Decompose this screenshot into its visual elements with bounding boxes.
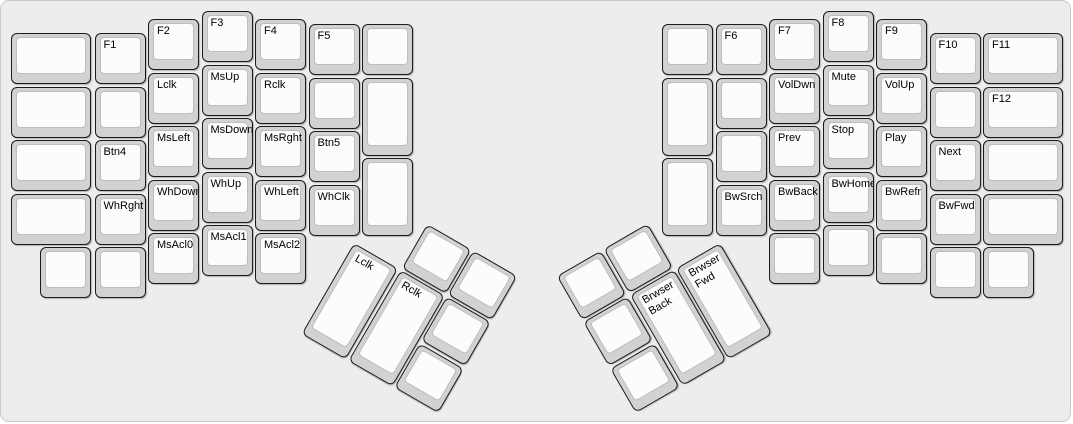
keycap-face: [881, 237, 922, 274]
keycap-face: [774, 237, 815, 274]
keycap-face: Next: [935, 144, 976, 181]
key-label: MsUp: [211, 71, 240, 84]
keycap-face: [367, 162, 408, 226]
key-label: F9: [885, 25, 898, 38]
key-msdown[interactable]: MsDown: [202, 118, 253, 169]
keycap-face: VolUp: [881, 77, 922, 114]
keyboard-canvas: F1Btn4WhRghtF2LclkMsLeftWhDownMsAcl0F3Ms…: [0, 0, 1071, 422]
keycap-face: [988, 144, 1058, 181]
keycap-face: WhUp: [207, 176, 248, 213]
keycap-face: Play: [881, 130, 922, 167]
key-blank[interactable]: [823, 225, 874, 276]
keycap-face: [411, 229, 465, 282]
key-label: F10: [939, 39, 958, 52]
key-blank[interactable]: [716, 131, 767, 182]
key-f2[interactable]: F2: [148, 19, 199, 70]
key-blank[interactable]: [11, 33, 91, 84]
keycap-face: F11: [988, 37, 1058, 74]
key-label: Btn5: [318, 137, 341, 150]
keycap-face: [367, 28, 408, 65]
key-blank[interactable]: [930, 87, 981, 138]
keycap-face: Rclk: [260, 77, 301, 114]
keycap-face: [721, 135, 762, 172]
key-label: MsLeft: [157, 132, 190, 145]
keycap-face: F4: [260, 23, 301, 60]
key-label: Brwser Back: [640, 279, 683, 319]
key-blank[interactable]: [983, 140, 1063, 191]
key-volup[interactable]: VolUp: [876, 73, 927, 124]
key-mute[interactable]: Mute: [823, 65, 874, 116]
keycap-face: BwHome: [828, 176, 869, 213]
keycap-face: [367, 82, 408, 146]
key-blank[interactable]: [769, 233, 820, 284]
key-btn4[interactable]: Btn4: [95, 140, 146, 191]
key-blank[interactable]: [309, 78, 360, 129]
key-label: Brwser Fwd: [687, 252, 730, 292]
key-label: Rclk: [264, 79, 285, 92]
key-label: MsDown: [211, 124, 253, 137]
keycap-face: [314, 82, 355, 119]
key-play[interactable]: Play: [876, 126, 927, 177]
key-whup[interactable]: WhUp: [202, 172, 253, 223]
key-f11[interactable]: F11: [983, 33, 1063, 84]
keycap-face: [45, 251, 86, 288]
key-label: F4: [264, 25, 277, 38]
key-label: WhLeft: [264, 186, 299, 199]
key-label: Mute: [832, 71, 856, 84]
key-f8[interactable]: F8: [823, 11, 874, 62]
key-f7[interactable]: F7: [769, 19, 820, 70]
keycap-face: [667, 162, 708, 226]
key-label: Stop: [832, 124, 855, 137]
key-blank[interactable]: [11, 194, 91, 245]
keycap-face: F7: [774, 23, 815, 60]
key-blank[interactable]: [983, 194, 1063, 245]
key-next[interactable]: Next: [930, 140, 981, 191]
key-blank[interactable]: [662, 158, 713, 236]
keycap-face: [457, 256, 511, 309]
key-label: Prev: [778, 132, 801, 145]
key-btn5[interactable]: Btn5: [309, 131, 360, 182]
keycap-face: MsLeft: [153, 130, 194, 167]
key-blank[interactable]: [362, 78, 413, 156]
key-bwsrch[interactable]: BwSrch: [716, 185, 767, 236]
keycap-face: WhRght: [100, 198, 141, 235]
key-label: F8: [832, 17, 845, 30]
key-label: WhUp: [211, 178, 242, 191]
keycap-face: [988, 251, 1029, 288]
keycap-face: F6: [721, 28, 762, 65]
key-f10[interactable]: F10: [930, 33, 981, 84]
keycap-face: F1: [100, 37, 141, 74]
key-msrght[interactable]: MsRght: [255, 126, 306, 177]
keycap-face: [16, 144, 86, 181]
key-blank[interactable]: [983, 247, 1034, 298]
keycap-face: Prev: [774, 130, 815, 167]
keycap-face: WhLeft: [260, 184, 301, 221]
keycap-face: [100, 91, 141, 128]
key-label: MsAcl0: [157, 239, 193, 252]
key-f6[interactable]: F6: [716, 24, 767, 75]
key-label: WhRght: [104, 200, 144, 213]
keycap-face: Lclk: [153, 77, 194, 114]
key-label: F11: [992, 39, 1010, 52]
keycap-face: MsUp: [207, 69, 248, 106]
key-label: F6: [725, 30, 738, 43]
keycap-face: [721, 82, 762, 119]
key-bwrefr[interactable]: BwRefr: [876, 180, 927, 231]
key-label: MsAcl2: [264, 239, 300, 252]
key-label: F12: [992, 93, 1011, 106]
keycap-face: F10: [935, 37, 976, 74]
key-f9[interactable]: F9: [876, 19, 927, 70]
keycap-face: [16, 37, 86, 74]
keycap-face: WhDown: [153, 184, 194, 221]
key-label: BwFwd: [939, 200, 975, 213]
keycap-face: F12: [988, 91, 1058, 128]
keycap-face: F2: [153, 23, 194, 60]
key-label: BwHome: [832, 178, 874, 191]
key-blank[interactable]: [11, 87, 91, 138]
keyboard-board: F1Btn4WhRghtF2LclkMsLeftWhDownMsAcl0F3Ms…: [1, 1, 1070, 421]
key-f3[interactable]: F3: [202, 11, 253, 62]
key-label: F7: [778, 25, 791, 38]
key-blank[interactable]: [95, 87, 146, 138]
keycap-face: Stop: [828, 122, 869, 159]
keycap-face: Btn4: [100, 144, 141, 181]
key-bwhome[interactable]: BwHome: [823, 172, 874, 223]
key-whclk[interactable]: WhClk: [309, 185, 360, 236]
keycap-face: F9: [881, 23, 922, 60]
key-label: VolUp: [885, 79, 914, 92]
keycap-face: [935, 91, 976, 128]
keycap-face: F8: [828, 15, 869, 52]
key-blank[interactable]: [662, 78, 713, 156]
keycap-face: Btn5: [314, 135, 355, 172]
key-label: Lclk: [352, 253, 375, 274]
key-label: Btn4: [104, 146, 127, 159]
key-blank[interactable]: [95, 247, 146, 298]
keycap-face: MsAcl2: [260, 237, 301, 274]
keycap-face: [16, 91, 86, 128]
keycap-face: F5: [314, 28, 355, 65]
key-label: WhDown: [157, 186, 199, 199]
key-voldwn[interactable]: VolDwn: [769, 73, 820, 124]
key-whleft[interactable]: WhLeft: [255, 180, 306, 231]
key-whrght[interactable]: WhRght: [95, 194, 146, 245]
keycap-face: BwSrch: [721, 189, 762, 226]
keycap-face: BwBack: [774, 184, 815, 221]
key-label: WhClk: [318, 191, 350, 204]
key-label: Lclk: [157, 79, 177, 92]
key-bwfwd[interactable]: BwFwd: [930, 194, 981, 245]
key-label: F1: [104, 39, 117, 52]
keycap-face: [667, 28, 708, 65]
key-f12[interactable]: F12: [983, 87, 1063, 138]
keycap-face: MsDown: [207, 122, 248, 159]
key-label: F5: [318, 30, 331, 43]
keycap-face: BwRefr: [881, 184, 922, 221]
key-blank[interactable]: [362, 24, 413, 75]
key-f5[interactable]: F5: [309, 24, 360, 75]
keycap-face: [828, 229, 869, 266]
key-blank[interactable]: [40, 247, 91, 298]
key-bwback[interactable]: BwBack: [769, 180, 820, 231]
key-prev[interactable]: Prev: [769, 126, 820, 177]
keycap-face: Mute: [828, 69, 869, 106]
keycap-face: [667, 82, 708, 146]
keycap-face: BwFwd: [935, 198, 976, 235]
key-label: Rclk: [399, 279, 424, 301]
key-label: Play: [885, 132, 906, 145]
key-label: BwSrch: [725, 191, 763, 204]
keycap-face: [609, 229, 663, 282]
key-label: BwRefr: [885, 186, 921, 199]
keycap-face: [100, 251, 141, 288]
key-blank[interactable]: [716, 78, 767, 129]
keycap-face: [16, 198, 86, 235]
key-label: MsRght: [264, 132, 302, 145]
key-msacl0[interactable]: MsAcl0: [148, 233, 199, 284]
key-label: MsAcl1: [211, 231, 247, 244]
key-label: F2: [157, 25, 170, 38]
key-msacl2[interactable]: MsAcl2: [255, 233, 306, 284]
key-label: F3: [211, 17, 224, 30]
key-msup[interactable]: MsUp: [202, 65, 253, 116]
keycap-face: [563, 256, 617, 309]
keycap-face: [988, 198, 1058, 235]
key-msacl1[interactable]: MsAcl1: [202, 225, 253, 276]
key-blank[interactable]: [876, 233, 927, 284]
key-blank[interactable]: [930, 247, 981, 298]
keycap-face: F3: [207, 15, 248, 52]
key-whdown[interactable]: WhDown: [148, 180, 199, 231]
key-label: Next: [939, 146, 962, 159]
key-blank[interactable]: [11, 140, 91, 191]
keycap-face: MsAcl1: [207, 229, 248, 266]
key-rclk[interactable]: Rclk: [255, 73, 306, 124]
key-stop[interactable]: Stop: [823, 118, 874, 169]
keycap-face: [935, 251, 976, 288]
keycap-face: MsRght: [260, 130, 301, 167]
key-label: BwBack: [778, 186, 818, 199]
keycap-face: VolDwn: [774, 77, 815, 114]
key-blank[interactable]: [362, 158, 413, 236]
key-blank[interactable]: [662, 24, 713, 75]
key-label: VolDwn: [778, 79, 815, 92]
keycap-face: WhClk: [314, 189, 355, 226]
key-f4[interactable]: F4: [255, 19, 306, 70]
key-lclk[interactable]: Lclk: [148, 73, 199, 124]
key-f1[interactable]: F1: [95, 33, 146, 84]
key-msleft[interactable]: MsLeft: [148, 126, 199, 177]
keycap-face: MsAcl0: [153, 237, 194, 274]
